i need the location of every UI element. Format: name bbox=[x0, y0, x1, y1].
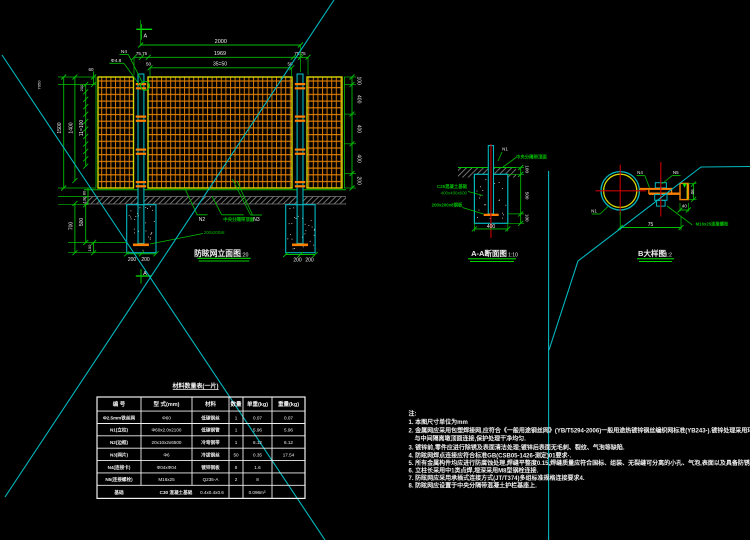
svg-text:0.096m³: 0.096m³ bbox=[249, 490, 266, 495]
svg-text:0.07: 0.07 bbox=[284, 415, 293, 420]
svg-text:Φ6: Φ6 bbox=[163, 452, 170, 457]
svg-text:1: 1 bbox=[235, 415, 238, 420]
svg-text:低碳钢管: 低碳钢管 bbox=[200, 427, 220, 434]
svg-text:90: 90 bbox=[690, 189, 695, 195]
svg-text:80: 80 bbox=[82, 190, 87, 195]
svg-text:3. 镀锌前,零件应进行除锈及表面清洁处理;镀锌后表面无毛刺: 3. 镀锌前,零件应进行除锈及表面清洁处理;镀锌后表面无毛刺、裂纹、气泡等缺陷. bbox=[409, 443, 625, 451]
svg-text:N4: N4 bbox=[637, 170, 643, 175]
svg-text:100: 100 bbox=[87, 244, 92, 251]
svg-text:0.35: 0.35 bbox=[253, 452, 262, 457]
svg-text:50: 50 bbox=[146, 62, 152, 67]
svg-text:N1: N1 bbox=[502, 147, 508, 152]
svg-text:N5: N5 bbox=[673, 170, 679, 175]
svg-text:型 式(mm): 型 式(mm) bbox=[154, 400, 180, 408]
svg-text:基础: 基础 bbox=[113, 489, 124, 496]
svg-text:Φ04xΦ04: Φ04xΦ04 bbox=[157, 465, 177, 470]
svg-text:8: 8 bbox=[256, 477, 259, 482]
svg-text:C25混凝土基础: C25混凝土基础 bbox=[437, 183, 468, 190]
svg-text:7050: 7050 bbox=[37, 80, 42, 90]
svg-text:材料数量表(一片): 材料数量表(一片) bbox=[172, 382, 219, 390]
svg-text:N1(立柱): N1(立柱) bbox=[110, 427, 129, 434]
svg-text:1969: 1969 bbox=[214, 51, 226, 57]
svg-text:0.4x0.4x0.6: 0.4x0.4x0.6 bbox=[200, 490, 224, 495]
svg-text:11=100: 11=100 bbox=[79, 120, 85, 137]
svg-text:200: 200 bbox=[141, 257, 150, 263]
svg-text:35=50: 35=50 bbox=[213, 62, 227, 68]
svg-text:50: 50 bbox=[233, 452, 239, 457]
svg-text:6. 立柱长采用中1类点焊,埋深采用M8型钢栓连接.: 6. 立柱长采用中1类点焊,埋深采用M8型钢栓连接. bbox=[409, 467, 539, 475]
svg-text:0.07: 0.07 bbox=[253, 415, 262, 420]
svg-text:200x200x8钢板: 200x200x8钢板 bbox=[432, 202, 463, 209]
svg-text:2. 金属网应采用包塑焊接网,应符合《一般用途钢丝网》(YB: 2. 金属网应采用包塑焊接网,应符合《一般用途钢丝网》(YB/T5294-200… bbox=[409, 426, 750, 434]
svg-text:500: 500 bbox=[79, 218, 85, 227]
svg-text:Q235-A: Q235-A bbox=[203, 477, 220, 482]
svg-text:N4(连接卡): N4(连接卡) bbox=[108, 464, 131, 471]
svg-text:120: 120 bbox=[82, 196, 87, 203]
svg-text:数量: 数量 bbox=[230, 400, 242, 408]
svg-text:B大样图: B大样图 bbox=[638, 248, 666, 258]
svg-text:Φ4.8: Φ4.8 bbox=[111, 58, 122, 64]
svg-text:N4: N4 bbox=[121, 49, 127, 55]
svg-text:20x10x2x6500: 20x10x2x6500 bbox=[152, 440, 182, 445]
svg-text:C30 混凝土基础: C30 混凝土基础 bbox=[160, 489, 193, 496]
svg-text:中央分隔带顶面: 中央分隔带顶面 bbox=[516, 154, 547, 161]
svg-text:17.54: 17.54 bbox=[283, 452, 295, 457]
svg-text:防眩网立面图: 防眩网立面图 bbox=[194, 248, 241, 258]
svg-text:N3: N3 bbox=[253, 217, 260, 223]
svg-text:1.6: 1.6 bbox=[254, 465, 261, 470]
svg-text:8. 防眩网应设置于中央分隔带混凝土护栏基座上.: 8. 防眩网应设置于中央分隔带混凝土护栏基座上. bbox=[409, 482, 538, 490]
svg-text:200: 200 bbox=[128, 257, 137, 263]
svg-text:Φ60x2.0x2100: Φ60x2.0x2100 bbox=[152, 428, 182, 433]
svg-text:200: 200 bbox=[356, 177, 362, 186]
svg-text:M16x25连接螺栓: M16x25连接螺栓 bbox=[696, 220, 729, 227]
svg-text:200: 200 bbox=[79, 84, 84, 91]
svg-text:中央分隔带顶面: 中央分隔带顶面 bbox=[223, 216, 254, 223]
svg-text:2000: 2000 bbox=[215, 39, 227, 45]
svg-text:N2: N2 bbox=[199, 217, 206, 223]
svg-text:重量(kg): 重量(kg) bbox=[278, 400, 299, 408]
svg-text:与中间隔离墩顶面连接,保护处理干净均匀.: 与中间隔离墩顶面连接,保护处理干净均匀. bbox=[415, 435, 527, 443]
svg-text:N3(网片): N3(网片) bbox=[110, 451, 129, 458]
svg-text:200: 200 bbox=[293, 258, 302, 264]
svg-text:1: 1 bbox=[235, 428, 238, 433]
svg-text:单重(kg): 单重(kg) bbox=[247, 400, 268, 408]
svg-text:镀锌钢板: 镀锌钢板 bbox=[201, 464, 220, 471]
svg-text:1500: 1500 bbox=[57, 122, 63, 133]
svg-text:1:2: 1:2 bbox=[665, 253, 672, 259]
svg-text:M16x25: M16x25 bbox=[158, 477, 175, 482]
svg-text:Φ60: Φ60 bbox=[162, 415, 171, 420]
svg-text:60: 60 bbox=[88, 67, 94, 72]
svg-text:500: 500 bbox=[525, 192, 530, 200]
svg-text:75: 75 bbox=[648, 222, 654, 228]
svg-text:N2(边框): N2(边框) bbox=[110, 439, 129, 446]
svg-text:A-A断面图: A-A断面图 bbox=[471, 248, 507, 258]
svg-text:1. 本图尺寸单位为mm: 1. 本图尺寸单位为mm bbox=[409, 418, 468, 426]
svg-text:编 号: 编 号 bbox=[113, 400, 126, 408]
svg-text:6.12: 6.12 bbox=[284, 440, 293, 445]
svg-text:注:: 注: bbox=[409, 410, 417, 418]
svg-text:400: 400 bbox=[487, 224, 496, 230]
svg-text:Φ2.5mm铁丝网: Φ2.5mm铁丝网 bbox=[103, 414, 136, 421]
svg-text:100: 100 bbox=[525, 165, 530, 173]
svg-text:75,75: 75,75 bbox=[136, 51, 148, 56]
svg-text:5.96: 5.96 bbox=[284, 428, 293, 433]
svg-text:400: 400 bbox=[356, 154, 362, 163]
svg-text:100: 100 bbox=[525, 214, 530, 222]
svg-text:200: 200 bbox=[305, 258, 314, 264]
svg-text:冷拔钢丝: 冷拔钢丝 bbox=[201, 451, 220, 458]
svg-text:1:20: 1:20 bbox=[239, 253, 249, 259]
svg-text:2: 2 bbox=[235, 477, 238, 482]
svg-text:4. 防眩网焊点连接应符合标准GB(CSB05-1426-测: 4. 防眩网焊点连接应符合标准GB(CSB05-1426-测定)01要求·. bbox=[409, 452, 572, 460]
svg-text:低碳钢丝: 低碳钢丝 bbox=[200, 414, 220, 421]
svg-text:400: 400 bbox=[356, 125, 362, 134]
svg-text:A: A bbox=[143, 34, 147, 40]
svg-text:6.12: 6.12 bbox=[253, 440, 262, 445]
svg-text:冷弯钢带: 冷弯钢带 bbox=[201, 439, 220, 446]
svg-text:1400: 1400 bbox=[68, 122, 74, 133]
svg-text:5. 所有金属构件均应进行防腐蚀处理,焊缝平整度0.15,焊: 5. 所有金属构件均应进行防腐蚀处理,焊缝平整度0.15,焊缝质量应符合国标、组… bbox=[409, 459, 750, 467]
svg-text:5.96: 5.96 bbox=[253, 428, 262, 433]
svg-text:8: 8 bbox=[235, 465, 238, 470]
svg-text:100: 100 bbox=[356, 77, 362, 86]
svg-text:400x400x600: 400x400x600 bbox=[441, 191, 468, 196]
svg-text:材料: 材料 bbox=[205, 400, 217, 408]
svg-text:1: 1 bbox=[235, 440, 238, 445]
svg-text:200x200x8: 200x200x8 bbox=[204, 230, 225, 235]
svg-text:40: 40 bbox=[682, 203, 688, 208]
svg-text:1:10: 1:10 bbox=[508, 253, 518, 259]
svg-text:700: 700 bbox=[68, 222, 74, 231]
svg-text:7. 防眩网应采用承插式连接方式(JT/T374)多组标准规: 7. 防眩网应采用承插式连接方式(JT/T374)多组标准规格连接要求4. bbox=[409, 474, 585, 482]
svg-text:400: 400 bbox=[356, 95, 362, 104]
svg-text:N5(连接螺栓): N5(连接螺栓) bbox=[105, 476, 133, 483]
svg-text:N1: N1 bbox=[591, 209, 597, 214]
